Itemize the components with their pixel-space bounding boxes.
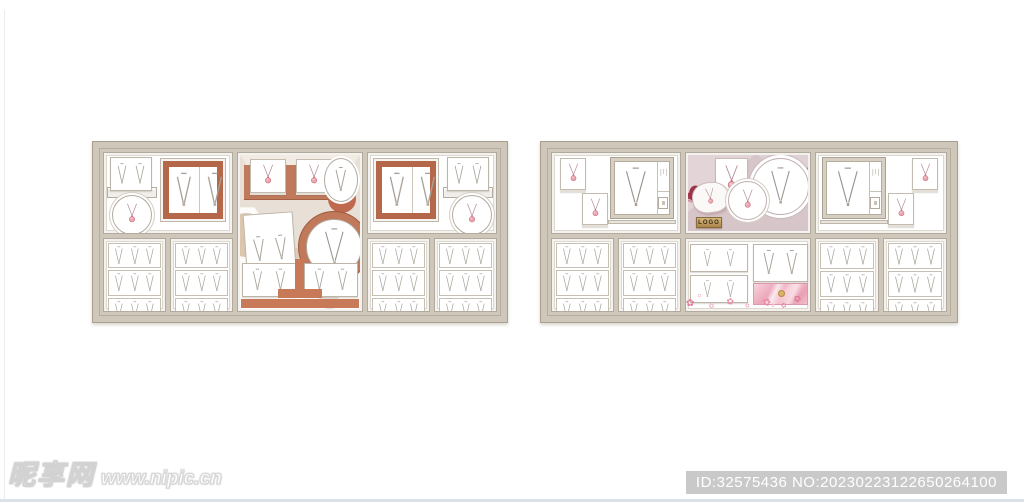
- necklace-v-icon: [855, 301, 871, 312]
- shadow-box-display: [822, 157, 886, 219]
- necklace-v-icon: [458, 300, 474, 312]
- necklace-v-icon: [823, 245, 839, 267]
- case-center-column: [237, 152, 363, 312]
- pendant-necklace-icon: [258, 162, 278, 190]
- flower-petal-icon: ✿: [725, 297, 735, 306]
- necklace-v-icon: [375, 245, 391, 266]
- jewelry-display-case-right: LOGO: [540, 141, 958, 323]
- necklace-panel: [169, 167, 199, 213]
- necklace-v-icon: [473, 272, 489, 293]
- terracotta-frame: [376, 161, 436, 219]
- chain-hangers: [658, 162, 669, 192]
- flower-petal-icon: ✿: [780, 300, 788, 309]
- ring-box-icon: [870, 197, 880, 209]
- necklace-v-icon: [200, 170, 230, 210]
- grid-compartment-row: [367, 238, 497, 312]
- oval-necklace-display: [324, 158, 358, 202]
- necklace-v-icon: [406, 245, 422, 266]
- necklace-row-card: [439, 243, 492, 268]
- lower-scene-compartment: ✿✿✿✿✿✿✿✿✿: [685, 238, 811, 312]
- necklace-row-card: [623, 298, 676, 312]
- necklace-v-icon: [823, 301, 839, 312]
- necklace-v-icon: [178, 245, 194, 266]
- necklace-v-icon: [923, 301, 939, 312]
- case-right-column: [367, 152, 497, 312]
- necklace-grid: [623, 243, 676, 307]
- necklace-v-icon: [391, 272, 407, 293]
- feature-compartment: [551, 152, 681, 234]
- necklace-row-card: [888, 243, 942, 269]
- flower-petal-icon: ✿: [706, 302, 715, 311]
- framed-necklace-display: [160, 158, 226, 222]
- necklace-row-card: [623, 270, 676, 295]
- pendant-necklace-icon: [122, 201, 142, 228]
- necklace-v-icon: [590, 245, 606, 266]
- necklace-v-icon: [142, 272, 158, 293]
- necklace-row-card: [108, 298, 161, 312]
- necklace-grid-compartment: [551, 238, 614, 312]
- necklace-v-icon: [468, 161, 486, 187]
- necklace-v-icon: [450, 161, 468, 187]
- case-right-column: [815, 152, 947, 312]
- necklace-v-icon: [194, 245, 210, 266]
- necklace-v-icon: [839, 245, 855, 267]
- necklace-v-icon: [142, 245, 158, 266]
- necklace-v-icon: [723, 279, 738, 299]
- necklace-grid: [175, 243, 228, 307]
- pendant-necklace-icon: [916, 161, 935, 187]
- necklace-v-icon: [891, 245, 907, 267]
- necklace-v-icon: [330, 165, 352, 194]
- necklace-grid: [888, 243, 942, 307]
- necklace-v-icon: [209, 300, 225, 312]
- necklace-row-card: [175, 243, 228, 268]
- necklace-v-icon: [839, 273, 855, 295]
- necklace-row-card: [556, 243, 609, 268]
- chain-sticks-icon: [870, 162, 881, 185]
- necklace-row-card: [556, 298, 609, 312]
- pendant-card: [888, 193, 914, 225]
- round-pendant-display: [112, 195, 152, 234]
- necklace-v-icon: [169, 170, 199, 210]
- watermark-logo: 昵享网: [8, 453, 95, 492]
- necklace-v-icon: [473, 245, 489, 266]
- necklace-v-icon: [823, 273, 839, 295]
- necklace-grid-compartment: [170, 238, 233, 312]
- necklace-v-icon: [907, 301, 923, 312]
- necklace-v-icon: [391, 300, 407, 312]
- pendant-necklace-icon: [304, 162, 324, 190]
- necklace-panel: [382, 167, 412, 213]
- necklace-v-icon: [657, 272, 673, 293]
- necklace-v-icon: [642, 300, 658, 312]
- case-left-column: [551, 152, 681, 312]
- necklace-v-icon: [113, 161, 131, 187]
- necklace-v-icon: [406, 300, 422, 312]
- necklace-panel: [199, 167, 230, 213]
- necklace-grid-compartment: [883, 238, 947, 312]
- necklace-v-icon: [575, 300, 591, 312]
- necklace-v-icon: [781, 248, 803, 277]
- necklace-row-card: [888, 299, 942, 312]
- necklace-v-icon: [406, 272, 422, 293]
- necklace-row-card: [372, 298, 425, 312]
- necklace-v-large-icon: [827, 165, 869, 211]
- necklace-v-icon: [575, 245, 591, 266]
- shadow-box-display: [610, 157, 674, 219]
- necklace-v-icon: [142, 300, 158, 312]
- necklace-v-icon: [758, 248, 780, 277]
- necklace-v-icon: [178, 272, 194, 293]
- site-watermark: 昵享网 www.nipic.cn: [8, 453, 222, 492]
- necklace-v-icon: [127, 300, 143, 312]
- pendant-card: [560, 158, 586, 190]
- necklace-v-icon: [391, 245, 407, 266]
- pendant-necklace-icon: [892, 196, 911, 222]
- necklace-row-card: [175, 298, 228, 312]
- round-pendant-display: [452, 195, 492, 234]
- feature-compartment: [103, 152, 233, 234]
- shadow-box-side: [658, 162, 669, 214]
- pendant-necklace-icon: [738, 187, 758, 214]
- necklace-v-icon: [626, 272, 642, 293]
- shadow-box-inner: [826, 161, 882, 215]
- necklace-v-icon: [248, 267, 267, 293]
- necklace-v-icon: [458, 245, 474, 266]
- necklace-v-icon: [473, 300, 489, 312]
- case-center-column: LOGO: [685, 152, 811, 312]
- necklace-v-icon: [375, 272, 391, 293]
- decorative-scene-compartment: LOGO: [685, 152, 811, 234]
- necklace-v-icon: [642, 245, 658, 266]
- necklace-v-icon: [194, 272, 210, 293]
- small-item-cell: [658, 192, 669, 214]
- pendant-necklace-icon: [701, 185, 720, 209]
- necklace-v-icon: [855, 273, 871, 295]
- necklace-v-icon: [590, 272, 606, 293]
- necklace-v-icon: [626, 245, 642, 266]
- pedestal-stem: [295, 259, 304, 293]
- necklace-v-large-icon: [615, 165, 657, 211]
- flower-petal-icon: ✿: [771, 303, 777, 308]
- necklace-v-icon: [575, 272, 591, 293]
- watermark-url: www.nipic.cn: [101, 468, 222, 490]
- necklace-v-icon: [700, 248, 715, 268]
- necklace-row-card: [820, 299, 874, 312]
- necklace-v-icon: [855, 245, 871, 267]
- necklace-v-icon: [923, 273, 939, 295]
- necklace-v-icon: [209, 272, 225, 293]
- necklace-v-icon: [111, 300, 127, 312]
- necklace-panel: [412, 167, 443, 213]
- feature-compartment: [367, 152, 497, 234]
- necklace-row-card: [175, 270, 228, 295]
- necklace-v-icon: [923, 245, 939, 267]
- grid-compartment-row: [551, 238, 681, 312]
- necklace-v-icon: [891, 273, 907, 295]
- feature-compartment: [815, 152, 947, 234]
- flower-petal-icon: ✿: [686, 299, 694, 309]
- necklace-grid-compartment: [815, 238, 879, 312]
- necklace-v-icon: [333, 267, 352, 293]
- pendant-necklace-icon: [564, 161, 583, 187]
- necklace-grid: [372, 243, 425, 307]
- terracotta-frame: [163, 161, 223, 219]
- necklace-grid: [108, 243, 161, 307]
- base-bar: [241, 299, 359, 308]
- necklace-v-icon: [657, 300, 673, 312]
- image-id-badge: ID:32575436 NO:20230223122650264100: [686, 471, 1007, 494]
- case-left-column: [103, 152, 233, 312]
- page-left-edge-line: [4, 10, 5, 499]
- necklace-grid-compartment: [103, 238, 166, 312]
- chain-sticks-icon: [658, 162, 669, 185]
- necklace-v-icon: [839, 301, 855, 312]
- pendant-necklace-icon: [462, 201, 482, 228]
- necklace-grid-compartment: [618, 238, 681, 312]
- chain-hangers: [870, 162, 881, 192]
- round-pendant-display: [728, 181, 767, 220]
- necklace-v-icon: [723, 248, 738, 268]
- necklace-card: [447, 157, 489, 191]
- necklace-v-icon: [907, 245, 923, 267]
- necklace-v-icon: [127, 272, 143, 293]
- necklace-row-card: [372, 270, 425, 295]
- necklace-row-card: [888, 271, 942, 297]
- necklace-panel: [615, 162, 658, 214]
- necklace-v-icon: [375, 300, 391, 312]
- necklace-grid: [439, 243, 492, 307]
- necklace-v-icon: [590, 300, 606, 312]
- necklace-grid: [820, 243, 874, 307]
- necklace-v-icon: [642, 272, 658, 293]
- flower-petal-icon: ✿: [743, 301, 751, 308]
- shadow-box-base: [820, 220, 888, 224]
- necklace-v-icon: [413, 170, 443, 210]
- necklace-v-icon: [657, 245, 673, 266]
- pedestal-crossbar: [278, 289, 322, 298]
- shadow-box-inner: [614, 161, 670, 215]
- necklace-v-icon: [127, 245, 143, 266]
- necklace-v-icon: [626, 300, 642, 312]
- logo-plaque: LOGO: [696, 217, 722, 228]
- shadow-box-base: [608, 220, 676, 224]
- ring-box-icon: [658, 197, 668, 209]
- necklace-grid: [556, 243, 609, 307]
- stock-image-canvas: LOGO: [0, 0, 1024, 502]
- necklace-v-icon: [559, 272, 575, 293]
- case-frame: [99, 148, 501, 316]
- small-item-cell: [870, 192, 881, 214]
- mauve-scene: LOGO: [688, 155, 808, 231]
- pendant-card: [250, 159, 286, 193]
- necklace-v-icon: [111, 272, 127, 293]
- necklace-row-card: [439, 298, 492, 312]
- jewelry-display-case-left: [92, 141, 508, 323]
- necklace-card: [690, 244, 748, 272]
- gold-pendant-icon: [778, 290, 785, 297]
- necklace-v-icon: [178, 300, 194, 312]
- necklace-row-card: [820, 243, 874, 269]
- necklace-row-card: [623, 243, 676, 268]
- necklace-v-icon: [559, 300, 575, 312]
- grid-compartment-row: [815, 238, 947, 312]
- necklace-v-icon: [559, 245, 575, 266]
- necklace-v-icon: [382, 170, 412, 210]
- necklace-v-icon: [442, 245, 458, 266]
- necklace-v-icon: [458, 272, 474, 293]
- grid-compartment-row: [103, 238, 233, 312]
- necklace-v-icon: [194, 300, 210, 312]
- necklace-v-icon: [891, 301, 907, 312]
- necklace-v-icon: [907, 273, 923, 295]
- necklace-row-card: [439, 270, 492, 295]
- necklace-row-card: [108, 243, 161, 268]
- necklace-panel: [827, 162, 870, 214]
- beige-scene: [240, 155, 360, 309]
- shadow-box-side: [870, 162, 881, 214]
- necklace-v-icon: [209, 245, 225, 266]
- necklace-v-icon: [131, 161, 149, 187]
- pendant-card: [582, 193, 608, 225]
- necklace-v-icon: [111, 245, 127, 266]
- necklace-v-icon: [442, 272, 458, 293]
- necklace-v-large-icon: [315, 226, 354, 269]
- pendant-necklace-icon: [586, 196, 605, 222]
- necklace-v-icon: [442, 300, 458, 312]
- decorative-scene-compartment: [237, 152, 363, 312]
- pendant-card: [912, 158, 938, 190]
- necklace-grid-compartment: [434, 238, 497, 312]
- necklace-row-card: [556, 270, 609, 295]
- framed-necklace-display: [373, 158, 439, 222]
- necklace-row-card: [372, 243, 425, 268]
- case-frame: LOGO: [547, 148, 951, 316]
- necklace-row-card: [820, 271, 874, 297]
- necklace-card: [753, 244, 808, 282]
- necklace-grid-compartment: [367, 238, 430, 312]
- necklace-card: [110, 157, 152, 191]
- necklace-row-card: [108, 270, 161, 295]
